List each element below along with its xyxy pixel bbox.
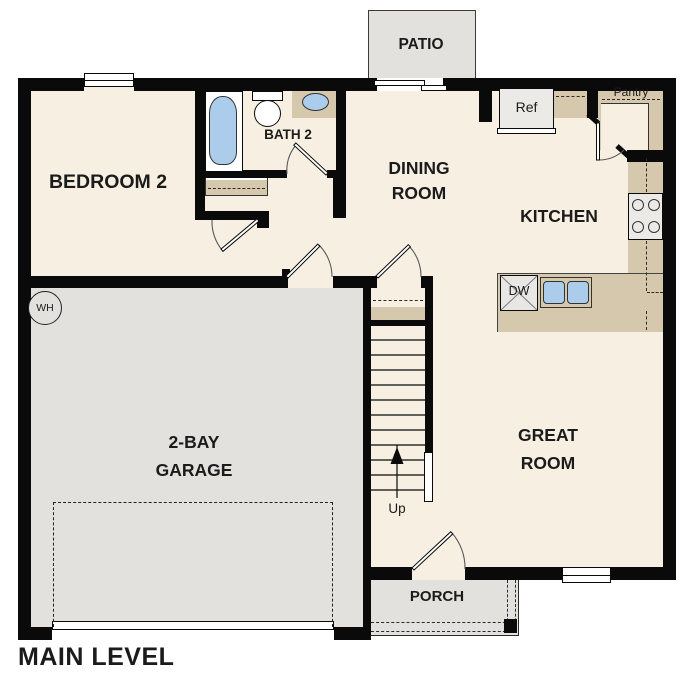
room-label-porch: PORCH xyxy=(397,588,477,605)
pantry-door xyxy=(597,123,625,160)
floor-plan: WH xyxy=(0,0,687,687)
plan-title: MAIN LEVEL xyxy=(18,643,268,672)
room-label-bath2: BATH 2 xyxy=(248,127,328,142)
room-label-garage: 2-BAY GARAGE xyxy=(134,428,254,484)
room-label-kitchen: KITCHEN xyxy=(499,206,619,227)
room-label-great-room: GREAT ROOM xyxy=(488,421,608,477)
stair-closet-door xyxy=(376,245,421,278)
up-label: Up xyxy=(377,501,417,516)
room-label-bedroom2: BEDROOM 2 xyxy=(28,171,188,194)
stair-treads xyxy=(371,340,425,498)
pantry-angled-stub xyxy=(615,144,631,159)
room-label-patio: PATIO xyxy=(371,36,471,54)
bath2-door xyxy=(287,143,328,175)
pantry-label: Pantry xyxy=(601,85,661,99)
dw-label: DW xyxy=(500,284,538,298)
plan-linework xyxy=(0,0,687,687)
front-door xyxy=(412,532,465,570)
garage-entry-door xyxy=(286,244,332,278)
room-label-dining: DINING ROOM xyxy=(359,156,479,206)
ref-label: Ref xyxy=(499,99,554,115)
bedroom2-door xyxy=(212,219,259,252)
stairs-up-arrow-icon xyxy=(391,447,404,464)
